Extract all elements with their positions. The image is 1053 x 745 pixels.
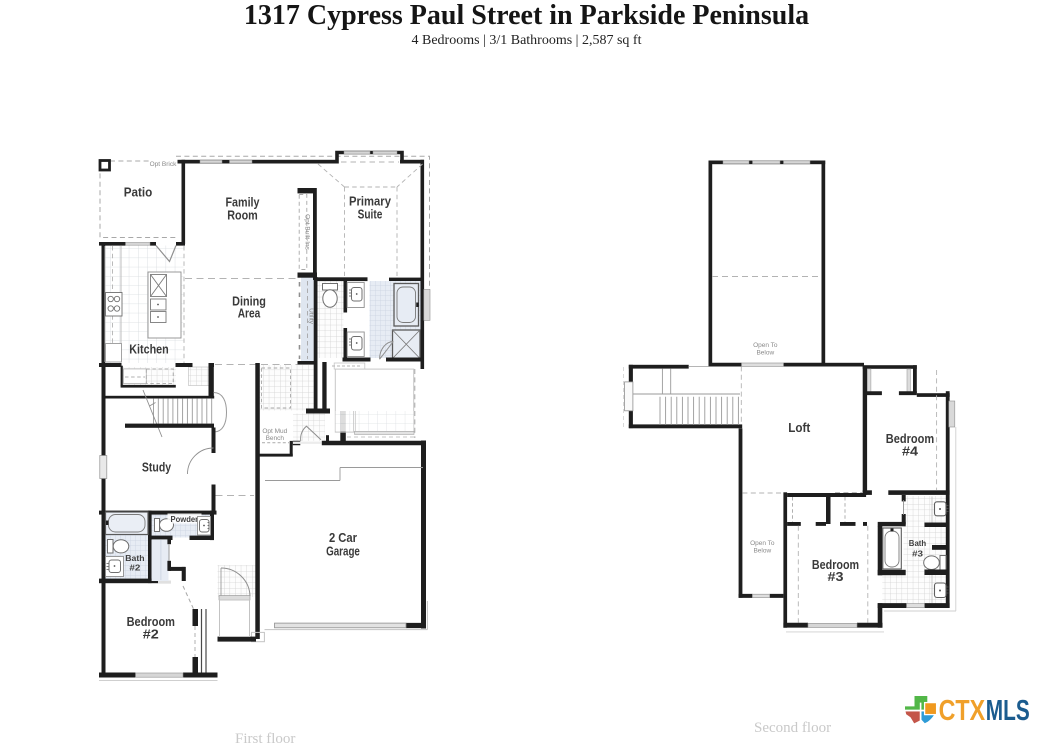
svg-text:Open To: Open To [753, 342, 778, 349]
svg-text:Loft: Loft [788, 420, 811, 435]
svg-text:Suite: Suite [358, 207, 383, 222]
svg-text:Opt Brick: Opt Brick [150, 161, 177, 168]
svg-text:Opt Built-Ins: Opt Built-Ins [304, 214, 311, 251]
svg-text:Open To: Open To [750, 540, 775, 547]
svg-text:MLS: MLS [986, 695, 1030, 727]
svg-text:CTX: CTX [939, 695, 986, 727]
svg-text:Below: Below [753, 548, 771, 555]
svg-text:Bench: Bench [266, 435, 285, 442]
svg-text:#3: #3 [912, 550, 924, 559]
svg-text:Kitchen: Kitchen [129, 341, 169, 356]
svg-text:#2: #2 [143, 627, 159, 642]
svg-text:#3: #3 [828, 569, 844, 584]
svg-text:#4: #4 [902, 444, 919, 459]
svg-text:Area: Area [238, 306, 261, 321]
svg-text:Powder: Powder [171, 515, 199, 524]
svg-text:Room: Room [227, 208, 258, 223]
svg-text:Bath: Bath [125, 554, 144, 563]
svg-text:Utility: Utility [308, 308, 315, 325]
svg-text:#2: #2 [129, 564, 141, 573]
svg-text:Garage: Garage [326, 544, 360, 559]
svg-text:Bath: Bath [909, 539, 927, 548]
svg-text:Study: Study [142, 460, 172, 475]
svg-text:Opt Mud: Opt Mud [262, 428, 287, 435]
svg-text:Below: Below [756, 350, 774, 357]
svg-text:Patio: Patio [124, 185, 153, 200]
